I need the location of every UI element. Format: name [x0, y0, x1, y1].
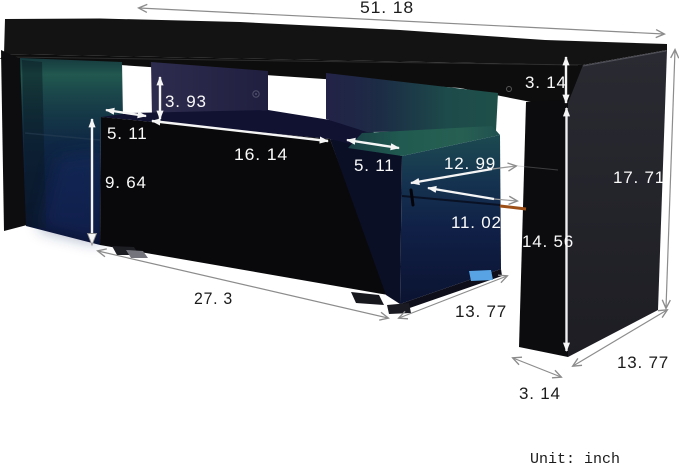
svg-text:16. 14: 16. 14	[234, 145, 288, 164]
svg-text:3. 14: 3. 14	[525, 73, 567, 92]
svg-text:14. 56: 14. 56	[522, 232, 574, 251]
svg-text:12. 99: 12. 99	[444, 154, 496, 173]
svg-text:3. 93: 3. 93	[165, 92, 207, 111]
svg-text:3. 14: 3. 14	[519, 384, 561, 403]
svg-text:Unit: inch: Unit: inch	[530, 451, 620, 467]
svg-text:5. 11: 5. 11	[354, 156, 395, 175]
svg-text:17. 71: 17. 71	[613, 168, 665, 187]
svg-text:9. 64: 9. 64	[105, 173, 147, 192]
svg-text:11. 02: 11. 02	[451, 213, 502, 232]
svg-text:27. 3: 27. 3	[194, 289, 233, 308]
svg-text:51. 18: 51. 18	[360, 0, 414, 17]
svg-text:5. 11: 5. 11	[107, 124, 148, 143]
svg-text:13. 77: 13. 77	[617, 353, 669, 372]
svg-text:13. 77: 13. 77	[455, 302, 507, 321]
